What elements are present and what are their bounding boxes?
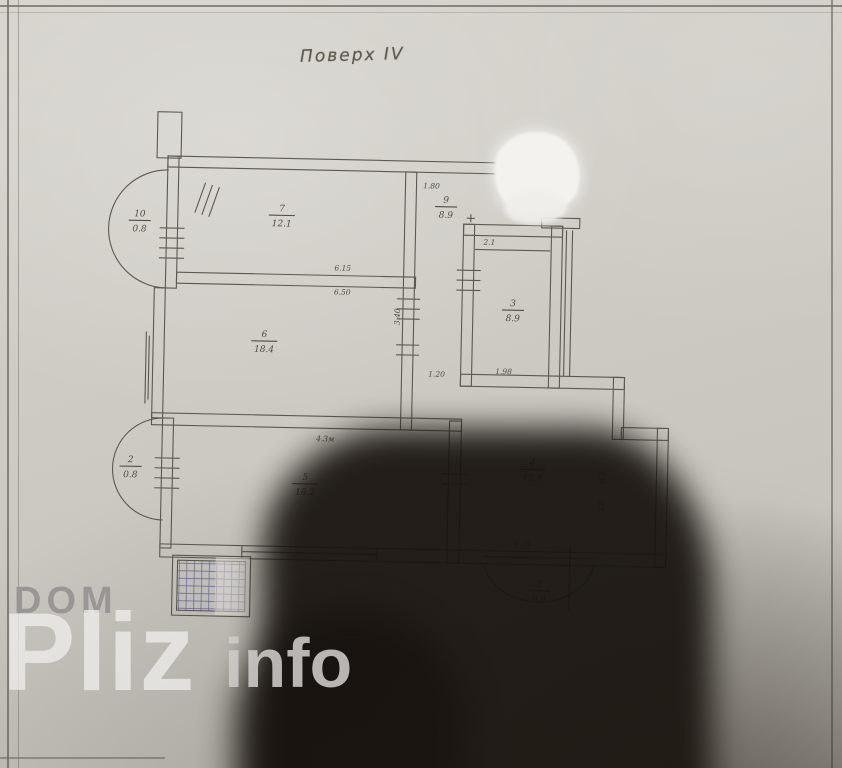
room-area-label: 3 8.9 [502,299,525,324]
wall-segment [160,418,174,548]
wall-segment [400,172,416,430]
wall-segment [152,288,166,418]
survey-cross-mark [467,214,475,222]
svg-text:18.4: 18.4 [254,345,275,355]
wall-segment [463,224,562,237]
wall-segment [460,224,474,386]
wall-segment [165,156,179,288]
dimension-label: 6.15 [334,263,351,272]
svg-text:3: 3 [510,299,516,309]
watermark-info: info [224,628,352,698]
balcony-arc [111,417,164,520]
svg-text:8.9: 8.9 [505,314,520,324]
room-area-label: 7 12.1 [269,204,296,230]
dimension-label: 1.80 [423,181,440,190]
room-area-label: 6 18.4 [251,330,278,356]
room-area-label: 9 8.9 [435,196,458,221]
svg-text:12.1: 12.1 [272,219,292,229]
dimension-label: 6.50 [334,287,351,296]
dimension-label: 4.3м [315,434,334,443]
shaft-lines [564,230,573,376]
inner-wall-line [475,249,550,251]
door-opening-marks [154,458,180,489]
wall-segment [176,272,415,288]
dimension-label: 1.98 [495,367,512,376]
glare-spot [214,557,249,616]
window-marks [145,332,150,404]
wall-segment [548,226,562,388]
svg-text:7: 7 [279,204,285,214]
svg-text:9: 9 [443,196,449,206]
wall-segment [460,374,624,389]
floor-plan-photo: Поверх IV [0,0,842,768]
door-opening-marks [456,270,480,290]
svg-text:2: 2 [127,455,134,465]
door-swing-hatch [195,183,220,217]
dimension-label: 1.20 [428,369,445,378]
svg-text:6: 6 [261,330,267,340]
room-area-label: 2 0.8 [119,455,142,480]
fraction-line [269,215,295,216]
redaction-patch [505,190,567,224]
door-opening-marks [159,228,185,259]
svg-text:8.9: 8.9 [439,211,454,221]
dimension-label: 2.1 [482,238,495,247]
wall-segment [612,377,624,439]
svg-text:0.8: 0.8 [132,224,147,234]
svg-text:0.8: 0.8 [123,470,138,480]
door-opening-marks [396,299,420,355]
room-area-label: 10 0.8 [128,209,151,234]
fraction-line [251,341,277,342]
watermark-pliz: Pliz [2,598,196,708]
wall-segment [157,112,182,158]
dimension-label: 3.40 [393,308,402,325]
svg-text:10: 10 [134,209,146,219]
